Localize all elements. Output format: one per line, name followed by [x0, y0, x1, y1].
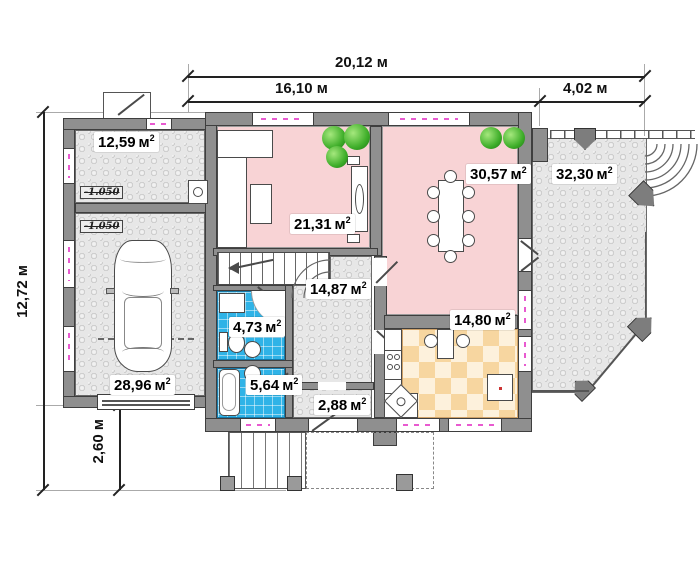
unit-m: м — [139, 134, 150, 151]
area-label-terrace: 32,30м2 — [552, 164, 617, 184]
area-label-garage: 28,96м2 — [110, 375, 175, 395]
dimension-line-top-total — [188, 76, 645, 78]
porch-pillar — [287, 476, 302, 491]
stove — [384, 350, 402, 380]
unit-m: м — [351, 281, 362, 298]
cabinet — [347, 156, 360, 165]
area-unit: м2 — [155, 377, 171, 394]
stool — [424, 334, 438, 348]
dim-label-top-total: 20,12 м — [332, 54, 391, 71]
vestibule-opening — [318, 382, 346, 390]
chair — [462, 234, 475, 247]
area-unit: м2 — [597, 166, 613, 183]
extension-line — [539, 88, 540, 126]
unit-sup: 2 — [166, 376, 171, 386]
area-value: 32,30 — [556, 166, 594, 183]
stool — [456, 334, 470, 348]
wall — [370, 126, 382, 256]
boiler — [188, 180, 208, 204]
unit-m: м — [597, 166, 608, 183]
fridge — [487, 374, 513, 401]
unit-m: м — [335, 216, 346, 233]
boiler-dial — [193, 187, 203, 197]
sink — [244, 341, 261, 358]
garage-door-line — [102, 404, 190, 406]
unit-m: м — [350, 397, 361, 414]
car — [114, 240, 172, 372]
window — [63, 240, 75, 288]
wall — [75, 203, 207, 213]
car-hood-line — [120, 255, 166, 263]
area-label-dining: 30,57м2 — [466, 164, 531, 184]
window — [518, 290, 532, 330]
window — [396, 418, 440, 432]
area-value: 4,73 — [233, 319, 262, 336]
unit-sup: 2 — [361, 396, 366, 406]
chair — [444, 170, 457, 183]
unit-m: м — [155, 377, 166, 394]
area-label-utility: 12,59м2 — [94, 132, 159, 152]
burner — [387, 354, 393, 360]
area-value: 30,57 — [470, 166, 508, 183]
wall — [205, 112, 217, 432]
level-mark-utility: -1.050 — [80, 186, 123, 199]
dim-label-side-lower: 2,60 м — [90, 416, 107, 466]
shower-tray — [219, 293, 245, 313]
window — [63, 326, 75, 372]
extension-line — [36, 490, 286, 491]
bathtub-inner — [222, 373, 236, 411]
dim-label-side-total: 12,72 м — [14, 262, 31, 321]
area-label-vestibule: 2,88м2 — [314, 395, 370, 415]
window — [252, 112, 314, 126]
area-unit: м2 — [265, 319, 281, 336]
unit-sup: 2 — [150, 133, 155, 143]
terrace-railing-right — [645, 232, 648, 320]
area-label-living: 21,31м2 — [290, 214, 355, 234]
area-unit: м2 — [351, 281, 367, 298]
level-mark-garage: -1.050 — [80, 220, 123, 233]
unit-m: м — [511, 166, 522, 183]
car-mirror — [106, 288, 115, 294]
unit-sup: 2 — [346, 215, 351, 225]
chair — [427, 210, 440, 223]
window — [146, 118, 172, 130]
wall — [518, 112, 532, 432]
porch-platform — [306, 432, 434, 489]
burner — [394, 364, 400, 370]
unit-sup: 2 — [362, 280, 367, 290]
extension-line — [188, 64, 189, 112]
plant — [326, 146, 348, 168]
tv-cabinet-detail — [355, 184, 364, 214]
area-value: 14,80 — [454, 312, 492, 329]
plant — [480, 127, 502, 149]
chair — [444, 250, 457, 263]
porch-pillar — [396, 474, 413, 491]
area-value: 5,64 — [250, 377, 279, 394]
area-value: 21,31 — [294, 216, 332, 233]
dim-label-top-right: 4,02 м — [560, 80, 610, 97]
entrance-door-opening — [308, 418, 358, 432]
wall — [63, 118, 215, 130]
unit-sup: 2 — [506, 311, 511, 321]
window — [448, 418, 502, 432]
wall — [285, 285, 293, 418]
kitchen-island — [437, 329, 454, 359]
corner-sofa — [217, 130, 273, 158]
dining-table — [438, 180, 464, 252]
unit-sup: 2 — [608, 165, 613, 175]
car-rear-window — [122, 347, 164, 357]
coffee-table — [250, 184, 272, 224]
unit-sup: 2 — [293, 376, 298, 386]
chair — [427, 186, 440, 199]
car-windshield — [122, 285, 164, 297]
chair — [462, 210, 475, 223]
bathtub — [219, 369, 240, 416]
burner — [394, 354, 400, 360]
area-unit: м2 — [350, 397, 366, 414]
area-value: 28,96 — [114, 377, 152, 394]
area-label-kitchen: 14,80м2 — [450, 310, 515, 330]
area-value: 14,87 — [310, 281, 348, 298]
unit-m: м — [282, 377, 293, 394]
area-label-hall: 14,87м2 — [306, 279, 371, 299]
garage-door — [97, 394, 195, 410]
window — [63, 148, 75, 184]
corner-sink-basin — [395, 395, 408, 408]
area-unit: м2 — [282, 377, 298, 394]
wall — [532, 128, 548, 162]
plant — [503, 127, 525, 149]
unit-sup: 2 — [276, 318, 281, 328]
unit-m: м — [495, 312, 506, 329]
window — [240, 418, 276, 432]
window — [518, 336, 532, 372]
dim-label-top-left: 16,10 м — [272, 80, 331, 97]
dimension-line-top-segments — [188, 101, 645, 103]
unit-m: м — [265, 319, 276, 336]
area-unit: м2 — [495, 312, 511, 329]
garage-door-line — [102, 400, 190, 402]
chair — [427, 234, 440, 247]
cabinet — [347, 234, 360, 243]
plant — [344, 124, 370, 150]
stair-arrow-head — [222, 262, 239, 274]
dimension-line-side-total — [43, 112, 45, 490]
fridge-mark — [499, 387, 502, 390]
area-unit: м2 — [139, 134, 155, 151]
area-unit: м2 — [511, 166, 527, 183]
car-roof — [124, 297, 162, 349]
porch-pillar — [220, 476, 235, 491]
toilet-tank — [219, 332, 228, 352]
area-unit: м2 — [335, 216, 351, 233]
burner — [387, 364, 393, 370]
area-label-bathroom: 5,64м2 — [246, 375, 302, 395]
car-mirror — [170, 288, 179, 294]
unit-sup: 2 — [522, 165, 527, 175]
terrace-curb — [532, 390, 589, 392]
area-label-wc: 4,73м2 — [229, 317, 285, 337]
area-value: 2,88 — [318, 397, 347, 414]
area-value: 12,59 — [98, 134, 136, 151]
chair — [462, 186, 475, 199]
floor-plan: 20,12 м 16,10 м 4,02 м 12,72 м 10,12 м 2… — [0, 0, 700, 575]
window — [388, 112, 470, 126]
